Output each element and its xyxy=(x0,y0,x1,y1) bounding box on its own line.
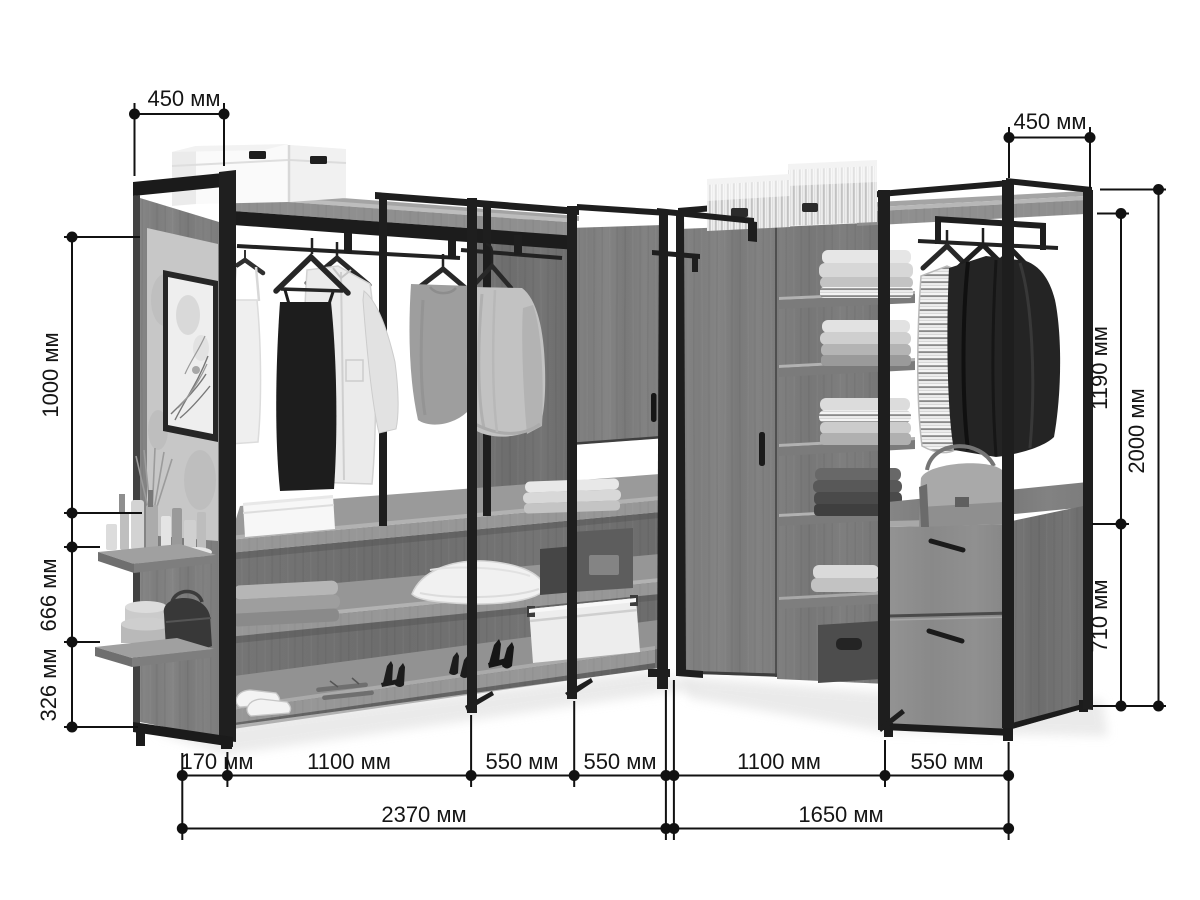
svg-text:550 мм: 550 мм xyxy=(583,749,656,774)
svg-text:1100 мм: 1100 мм xyxy=(737,749,821,774)
svg-text:1190 мм: 1190 мм xyxy=(1087,326,1112,410)
svg-text:170 мм: 170 мм xyxy=(180,749,253,774)
svg-text:2370 мм: 2370 мм xyxy=(381,802,466,827)
svg-text:1100 мм: 1100 мм xyxy=(307,749,391,774)
svg-text:326 мм: 326 мм xyxy=(36,648,61,721)
svg-text:550 мм: 550 мм xyxy=(910,749,983,774)
svg-text:2000 мм: 2000 мм xyxy=(1124,388,1149,473)
svg-text:1000 мм: 1000 мм xyxy=(38,332,63,417)
svg-text:1650 мм: 1650 мм xyxy=(798,802,883,827)
svg-text:450 мм: 450 мм xyxy=(147,86,220,111)
svg-text:550 мм: 550 мм xyxy=(485,749,558,774)
svg-text:450 мм: 450 мм xyxy=(1013,109,1086,134)
svg-text:710 мм: 710 мм xyxy=(1087,579,1112,652)
svg-text:666 мм: 666 мм xyxy=(36,558,61,631)
